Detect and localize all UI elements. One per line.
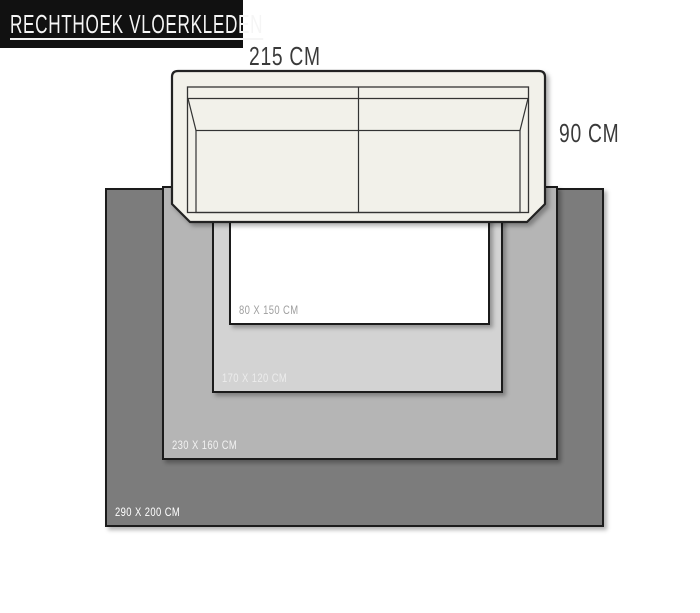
rug-label: 170 X 120 CM: [222, 373, 287, 385]
rug-size-guide: RECHTHOEK VLOERKLEDEN 215 CM 90 CM 290 X…: [0, 0, 700, 613]
rug-label: 230 X 160 CM: [172, 440, 237, 452]
sofa-depth-label: 90 CM: [559, 118, 619, 149]
sofa-illustration: [162, 60, 555, 232]
page-title: RECHTHOEK VLOERKLEDEN: [10, 9, 263, 40]
rug-label: 290 X 200 CM: [115, 507, 180, 519]
rug-label: 80 X 150 CM: [239, 305, 299, 317]
title-box: RECHTHOEK VLOERKLEDEN: [0, 0, 243, 48]
